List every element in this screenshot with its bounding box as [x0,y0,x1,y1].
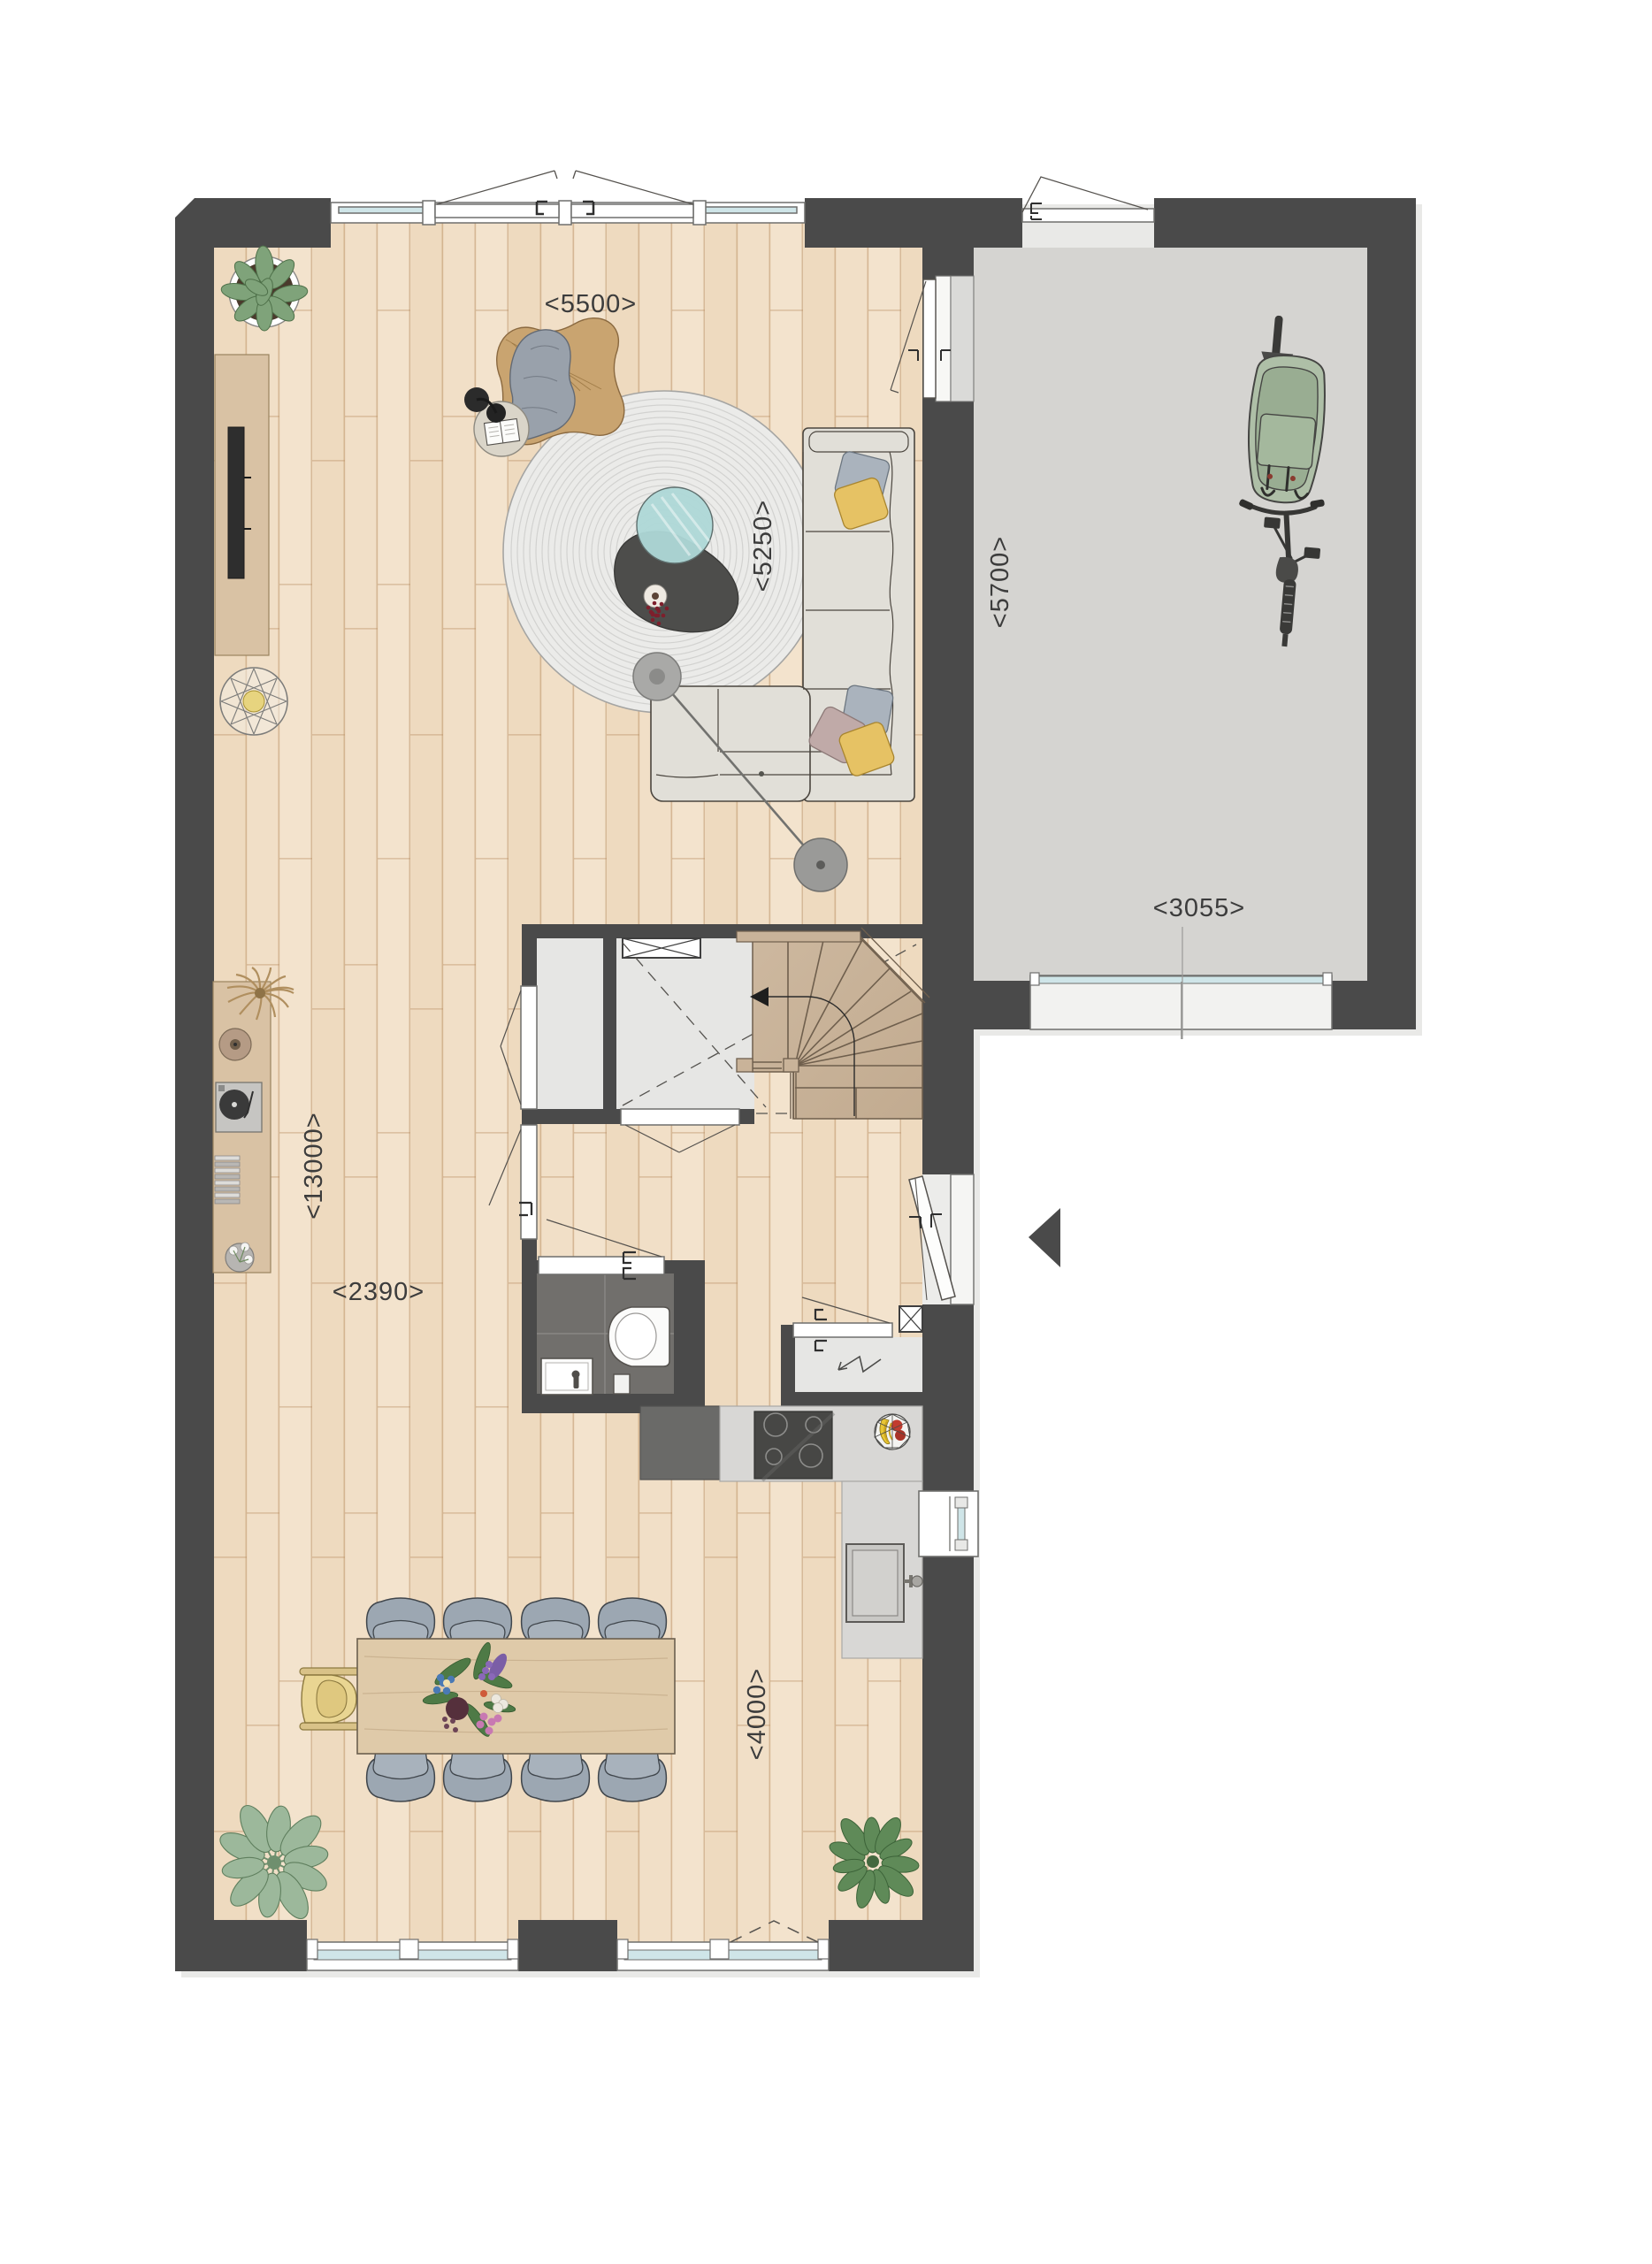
svg-text:<5700>: <5700> [986,536,1014,628]
svg-text:<5250>: <5250> [749,500,777,592]
svg-text:<4000>: <4000> [743,1668,771,1760]
svg-text:<13000>: <13000> [300,1112,328,1220]
svg-text:<3055>: <3055> [1153,894,1245,922]
svg-text:<2390>: <2390> [333,1278,424,1306]
svg-text:<5500>: <5500> [545,290,637,318]
